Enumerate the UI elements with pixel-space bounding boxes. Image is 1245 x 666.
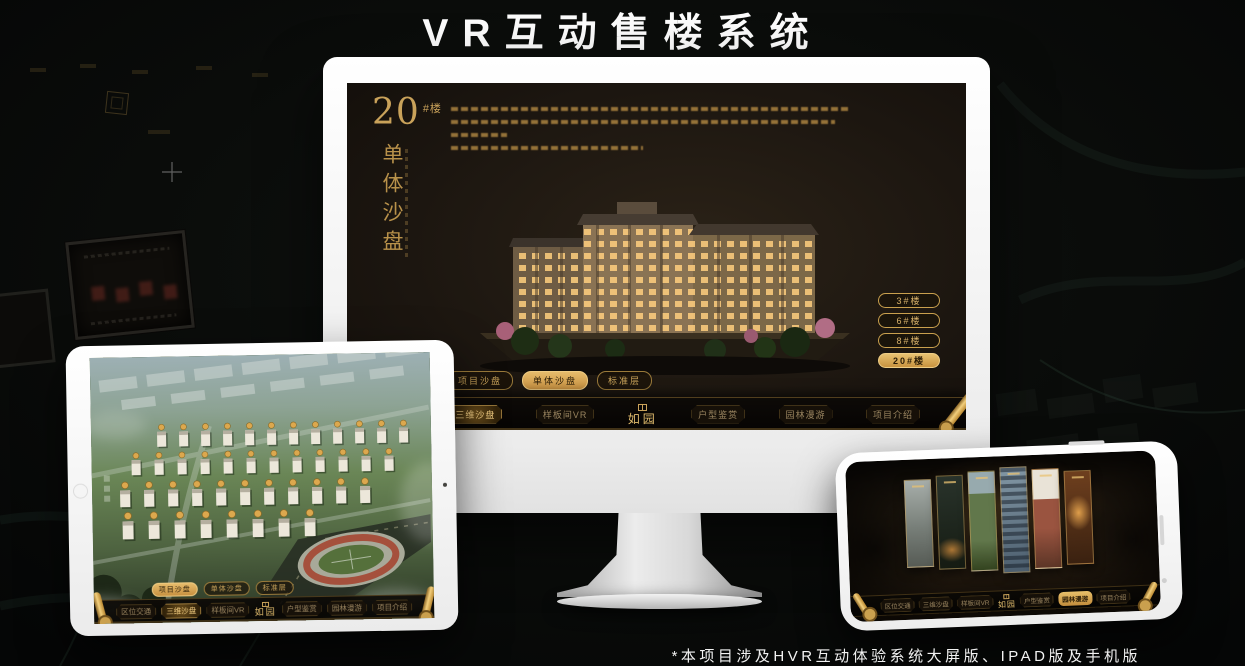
nav-item-unit-plans[interactable]: 户型鉴赏: [1020, 592, 1055, 607]
tab-project-sandbox[interactable]: 项目沙盘: [447, 371, 513, 390]
tablet-screen: 项目沙盘 单体沙盘 标准层 区位交通 三维沙盘 样板间VR 如园 户型鉴赏 园林…: [90, 352, 435, 624]
gallery-panel[interactable]: [904, 479, 934, 568]
brand-seal-icon: [638, 404, 647, 411]
floor-button-label: 20#楼: [893, 354, 925, 367]
scene-gallery: [903, 453, 1095, 588]
tab-standard-floor[interactable]: 标准层: [256, 580, 294, 595]
tablet-device: 项目沙盘 单体沙盘 标准层 区位交通 三维沙盘 样板间VR 如园 户型鉴赏 园林…: [65, 340, 458, 637]
floor-button-8[interactable]: 8#楼: [878, 333, 940, 348]
gallery-panel[interactable]: [1064, 470, 1095, 565]
floor-button-group: 3#楼 6#楼 8#楼 20#楼: [878, 293, 940, 368]
nav-item-3d-sandbox[interactable]: 三维沙盘: [161, 603, 201, 619]
nav-item-3d-sandbox[interactable]: 三维沙盘: [919, 596, 954, 611]
phone-screen: 区位交通 三维沙盘 样板间VR 如园 户型鉴赏 园林漫游 项目介绍: [845, 450, 1161, 622]
background-gold-chip: [105, 91, 129, 115]
description-paragraph: [451, 107, 851, 159]
nav-item-3d-sandbox[interactable]: 三维沙盘: [448, 405, 502, 424]
floor-button-20[interactable]: 20#楼: [878, 353, 940, 368]
brand-logo: 如园: [254, 601, 276, 617]
gallery-panel[interactable]: [936, 475, 967, 570]
building-heading: 20 #楼: [372, 95, 442, 131]
background-plaque-2: [0, 289, 56, 370]
vertical-subtitle-decor: [405, 149, 408, 259]
footnote-text: *本项目涉及HVR互动体验系统大屏版、IPAD版及手机版: [672, 645, 1141, 666]
brand-seal-icon: [1003, 594, 1009, 599]
brand-logo-text: 如园: [628, 413, 658, 425]
tab-standard-floor[interactable]: 标准层: [597, 371, 652, 390]
monitor-base: [557, 594, 762, 609]
background-plaque: [65, 230, 195, 340]
brand-seal-icon: [262, 601, 269, 606]
floor-button-label: 3#楼: [896, 294, 921, 307]
nav-item-project-intro[interactable]: 项目介绍: [372, 599, 412, 615]
floor-button-label: 8#楼: [896, 334, 921, 347]
illegible-text-line: [451, 146, 643, 150]
floor-button-3[interactable]: 3#楼: [878, 293, 940, 308]
nav-item-garden-roam[interactable]: 园林漫游: [327, 600, 367, 616]
view-tab-group: 项目沙盘 单体沙盘 标准层: [447, 371, 652, 390]
phone-device: 区位交通 三维沙盘 样板间VR 如园 户型鉴赏 园林漫游 项目介绍: [835, 441, 1184, 632]
gallery-panel[interactable]: [967, 471, 998, 572]
nav-item-project-intro[interactable]: 项目介绍: [1096, 589, 1131, 604]
page: VR互动售楼系统 20 #楼 单体沙盘: [0, 0, 1245, 666]
vertical-title: 单体沙盘: [377, 143, 407, 273]
tab-project-sandbox[interactable]: 项目沙盘: [152, 582, 198, 597]
tablet-camera-icon: [443, 483, 447, 487]
nav-item-showroom-vr[interactable]: 样板间VR: [206, 602, 249, 618]
nav-item-project-intro[interactable]: 项目介绍: [866, 405, 920, 424]
nav-item-location[interactable]: 区位交通: [116, 604, 156, 620]
brand-logo: 如园: [628, 404, 658, 425]
nav-item-unit-plans[interactable]: 户型鉴赏: [282, 601, 322, 617]
nav-item-garden-roam[interactable]: 园林漫游: [779, 405, 833, 424]
gallery-panel[interactable]: [999, 466, 1030, 573]
nav-item-garden-roam[interactable]: 园林漫游: [1058, 591, 1093, 606]
tab-single-sandbox[interactable]: 单体沙盘: [204, 581, 250, 596]
illegible-text-line: [451, 107, 851, 111]
building-unit: #楼: [423, 100, 442, 116]
monitor-stand: [557, 513, 762, 597]
scroll-handle-icon[interactable]: [940, 392, 966, 430]
brand-logo: 如园: [997, 593, 1016, 609]
floor-button-6[interactable]: 6#楼: [878, 313, 940, 328]
gallery-panel[interactable]: [1031, 468, 1062, 569]
tablet-view-tab-group: 项目沙盘 单体沙盘 标准层: [152, 580, 294, 596]
brand-logo-text: 如园: [998, 600, 1016, 609]
illegible-text-line: [451, 133, 507, 137]
building-number: 20: [372, 95, 420, 131]
brand-logo-text: 如园: [255, 608, 277, 617]
nav-item-showroom-vr[interactable]: 样板间VR: [957, 595, 994, 610]
nav-item-unit-plans[interactable]: 户型鉴赏: [691, 405, 745, 424]
nav-item-showroom-vr[interactable]: 样板间VR: [536, 405, 595, 424]
tab-single-sandbox[interactable]: 单体沙盘: [522, 371, 588, 390]
floor-button-label: 6#楼: [896, 314, 921, 327]
page-title: VR互动售楼系统: [0, 2, 1245, 58]
building-3d-view[interactable]: [465, 155, 865, 375]
nav-item-location[interactable]: 区位交通: [880, 598, 915, 613]
illegible-text-line: [451, 120, 835, 124]
